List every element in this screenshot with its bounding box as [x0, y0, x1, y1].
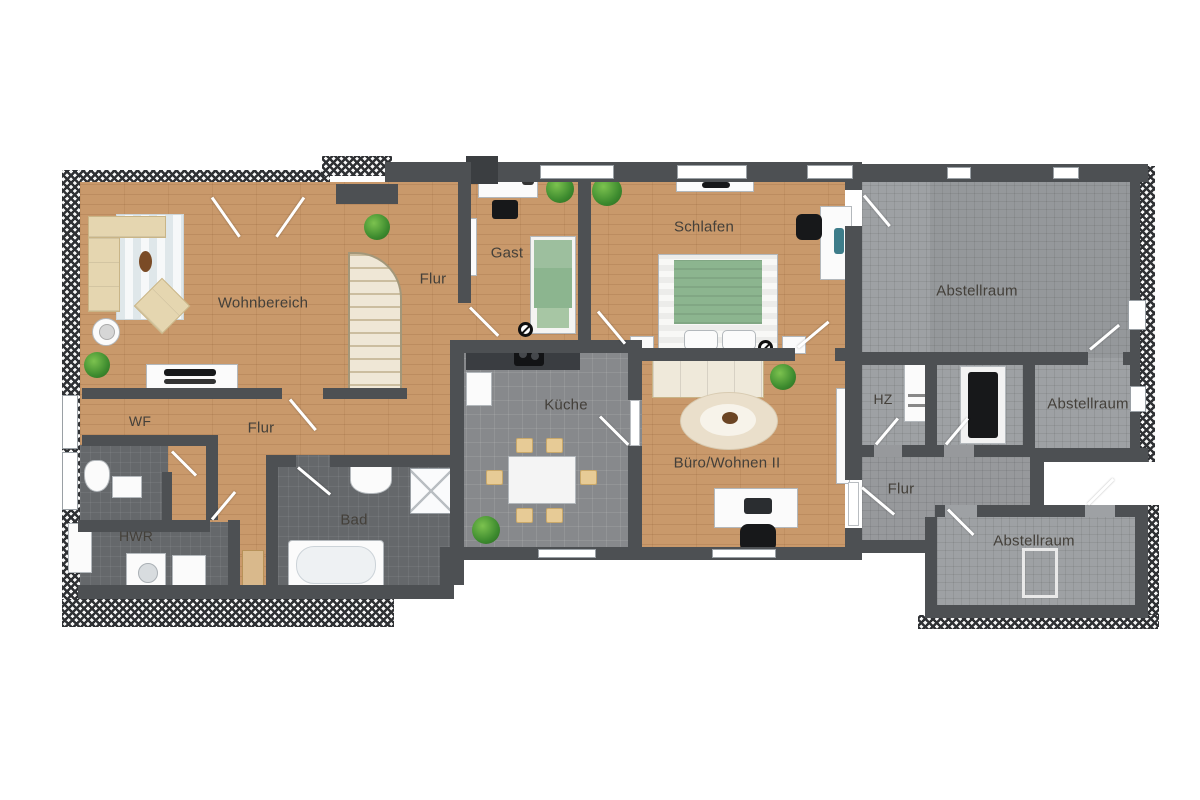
bed-pillow	[722, 330, 756, 350]
window	[1053, 167, 1079, 179]
fridge	[466, 372, 492, 406]
wall-hwr-right	[228, 520, 240, 597]
window	[712, 549, 776, 558]
wc-sink	[112, 476, 142, 498]
window	[947, 167, 971, 179]
plant-icon	[472, 516, 500, 544]
wall-kitchen-right	[628, 340, 642, 400]
plant-icon	[364, 214, 390, 240]
wall-bedroom-bottom	[642, 348, 795, 361]
cooktop-burner	[531, 352, 539, 360]
wall-storeb-left	[925, 517, 937, 617]
wall-wing-divider	[1123, 352, 1138, 365]
bed-pillow	[684, 330, 718, 350]
washing-machine-door-icon	[138, 563, 158, 583]
floor-lamp	[99, 324, 115, 340]
tv-icon	[164, 369, 216, 376]
door-leaf	[848, 482, 859, 526]
room-label-flur-stairs: Flur	[420, 271, 447, 288]
wall-flur-top	[323, 388, 407, 399]
sofa-top	[88, 216, 166, 238]
office-pc-icon	[744, 498, 772, 514]
wall-bath-top	[266, 455, 296, 467]
office-sofa	[652, 358, 764, 398]
wardrobe-cabinet-inner	[968, 372, 998, 438]
lamp-symbol-icon	[518, 322, 533, 337]
dining-chair	[516, 508, 533, 523]
wall-corridor-left	[206, 435, 218, 520]
dog	[722, 412, 738, 424]
wall-kitchen-left	[450, 340, 464, 585]
floor-storage-top-shade	[930, 182, 1138, 358]
room-label-abstellraum-mid: Abstellraum	[1047, 396, 1128, 413]
room-label-abstellraum-top: Abstellraum	[936, 283, 1017, 300]
tv-sideboard	[146, 364, 238, 390]
wall-flurb-bottom	[845, 540, 935, 553]
tv-soundbar-icon	[164, 379, 216, 384]
dining-chair	[546, 508, 563, 523]
room-label-flur-right: Flur	[888, 481, 915, 498]
wall-bottom-mid	[452, 547, 845, 560]
window	[1128, 300, 1146, 330]
guest-bed-blanket	[537, 308, 569, 328]
plant-icon	[84, 352, 110, 378]
window	[677, 165, 747, 179]
room-label-buero: Büro/Wohnen II	[674, 455, 781, 472]
dining-chair	[516, 438, 533, 453]
wall-wc-right	[162, 472, 172, 522]
room-label-kueche: Küche	[544, 397, 588, 414]
window	[807, 165, 853, 179]
wall-storeb-bottom	[925, 605, 1148, 618]
dining-chair	[546, 438, 563, 453]
desk-deco	[834, 228, 844, 254]
wall-mid-bottom	[1035, 448, 1148, 462]
dining-chair	[486, 470, 503, 485]
window	[540, 165, 614, 179]
wall-top-wing	[845, 164, 1148, 182]
door-gap	[944, 445, 974, 457]
wc-toilet	[84, 460, 110, 492]
room-label-flur-main: Flur	[248, 420, 275, 437]
wall-bedroom-bottom	[835, 348, 862, 361]
room-label-gast: Gast	[491, 245, 523, 262]
wall-guest-left	[458, 162, 471, 303]
room-label-wohnbereich: Wohnbereich	[218, 295, 308, 312]
wall-bath-left	[266, 455, 278, 597]
room-label-schlafen: Schlafen	[674, 219, 734, 236]
wall-closet-right	[1023, 365, 1035, 457]
dining-table	[508, 456, 576, 504]
plant-icon	[770, 364, 796, 390]
shower	[410, 468, 452, 514]
room-label-wf: WF	[129, 413, 151, 429]
guest-desk-chair	[492, 200, 518, 219]
room-label-hz: HZ	[873, 391, 892, 407]
roof-hatch-top-step	[322, 156, 392, 176]
wall-wing-divider	[862, 352, 1088, 365]
wall-guest-right	[578, 162, 591, 348]
wall-storeb-right	[1135, 505, 1148, 618]
dining-chair	[580, 470, 597, 485]
storage-box	[1022, 548, 1058, 598]
staircase	[348, 252, 402, 392]
room-label-bad: Bad	[340, 512, 367, 529]
guest-bed-pillow	[534, 240, 572, 268]
room-label-hwr: HWR	[119, 528, 153, 544]
guest-bed-duvet	[534, 268, 572, 308]
window	[1130, 386, 1146, 412]
window	[62, 395, 78, 449]
wall-wf-top	[82, 388, 282, 399]
dresser-detail-icon	[702, 182, 730, 188]
window	[538, 549, 596, 558]
dog	[139, 251, 152, 272]
hall-bench	[242, 550, 264, 590]
wall-bath-top	[330, 455, 464, 467]
door-leaf	[630, 400, 640, 446]
door-swing-icon	[1087, 478, 1115, 506]
door-gap	[1085, 505, 1115, 517]
double-bed-duvet	[674, 260, 762, 324]
wall-wf-bottom	[82, 435, 206, 446]
bath-sink	[350, 464, 392, 494]
floor-plan: Wohnbereich Flur Gast Schlafen Abstellra…	[0, 0, 1200, 800]
wall-top-main	[385, 162, 845, 182]
room-label-abstellraum-bottom: Abstellraum	[993, 533, 1074, 550]
wall-hz-right	[925, 365, 937, 457]
wall-stair-stub	[336, 184, 398, 204]
roof-hatch-bottom-left	[62, 599, 394, 627]
bathtub-inner	[296, 546, 376, 584]
wall-kitchen-top	[450, 340, 642, 353]
window	[62, 452, 78, 510]
wall-kitchen-right	[628, 446, 642, 555]
bedroom-desk-chair	[796, 214, 822, 240]
door-gap	[874, 445, 902, 457]
wall-bottom-left	[78, 585, 452, 599]
